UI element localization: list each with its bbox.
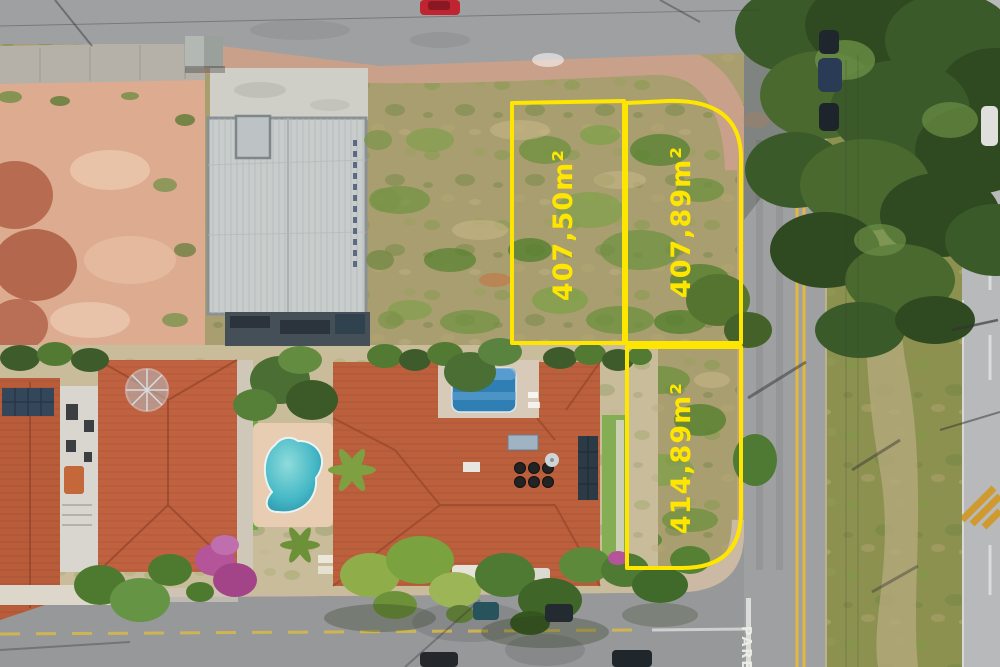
pare-road-marking: PARE [738,626,753,667]
aerial-photo: PARE [0,0,1000,667]
parked-car-1 [819,30,839,54]
dirt-lot [0,80,205,352]
side-fence [616,420,624,570]
plot-3-area-label: 414,89m² [666,382,697,534]
gazebo-dome [126,369,168,411]
house-left [0,378,60,620]
red-car [420,0,460,15]
stone-retaining-wall [0,42,205,84]
aerial-photo-canvas: PARE [0,0,1000,667]
dark-car-street [545,604,573,622]
skylight [508,435,538,450]
orange-awning [64,466,84,494]
plot-1-area-label: 407,50m² [548,149,579,301]
roof-vent-box [463,462,480,472]
lane-divider-white [652,629,746,630]
parked-car-2 [818,58,842,92]
white-car-far-road [981,106,998,146]
house-right [333,360,600,586]
narrow-house [60,386,100,572]
roof-annex [236,116,270,158]
car-bottom-edge-1 [420,652,458,667]
parked-car-3 [819,103,839,131]
plot-2-area-label: 407,89m² [666,146,697,298]
paint-splotch [532,53,564,67]
concrete-apron [210,68,368,120]
teal-car [473,602,499,620]
car-bottom-edge-2 [612,650,652,667]
